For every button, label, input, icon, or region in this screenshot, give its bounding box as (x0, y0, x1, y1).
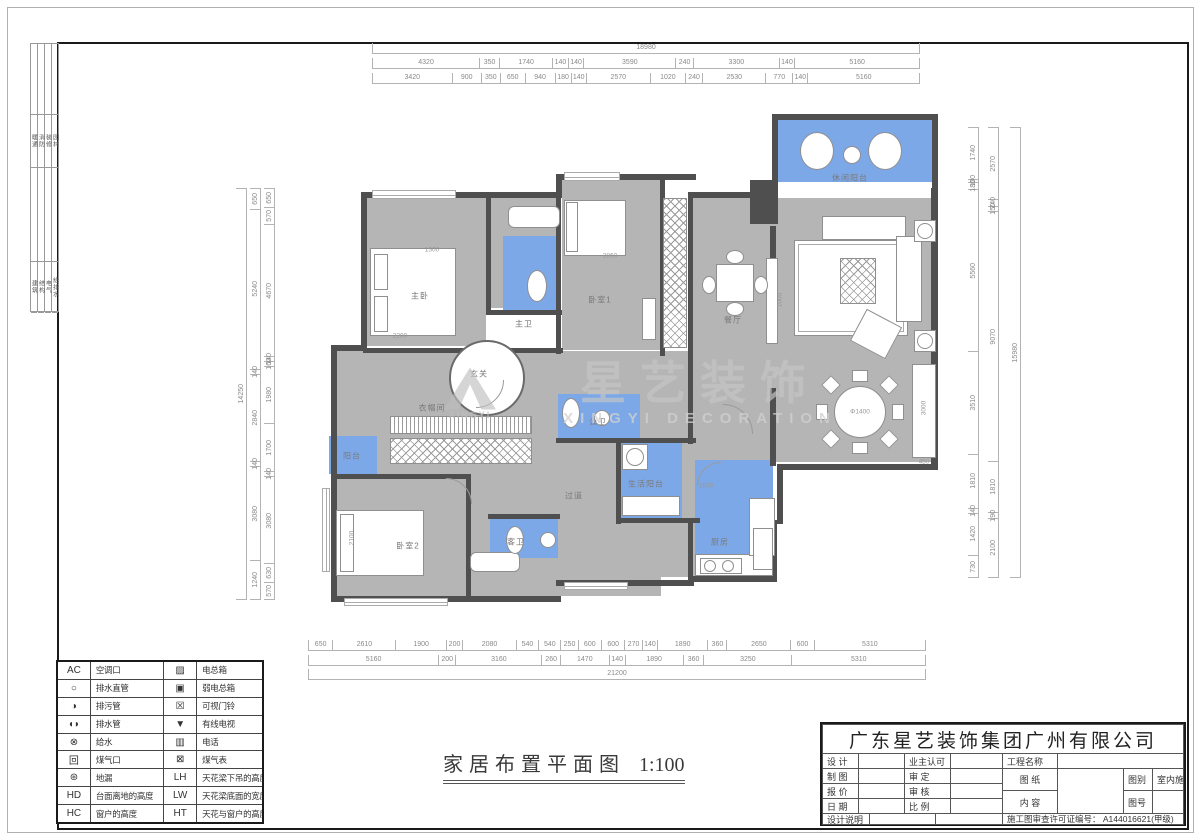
value-date (858, 798, 905, 814)
dimension-value: 1900 (413, 641, 429, 648)
dimension-segment: 2080 (463, 640, 517, 651)
dimension-value: 14250 (238, 384, 245, 403)
legend-label: 天花梁下吊的高度 (197, 769, 262, 786)
lounge-chair (800, 132, 834, 170)
field-check: 审 核 (904, 783, 951, 799)
dimension-value: 240 (688, 74, 700, 81)
value-draft (858, 768, 905, 784)
field-project-name: 工程名称 (1002, 753, 1058, 769)
dimension-segment: 1740 (500, 58, 553, 69)
toilet-public (562, 398, 580, 428)
legend-label: 台面离地的高度 (91, 787, 164, 804)
legend-table: AC空调口▨电总箱○排水直管▣弱电总箱◑排污管☒可视门铃◖◗排水管▼有线电视⊗给… (56, 660, 264, 824)
dimension-value: 540 (522, 641, 534, 648)
legend-symbol: ○ (58, 680, 91, 697)
dimension-value: 600 (607, 641, 619, 648)
plan-dimension-annotation: 1530 (699, 483, 713, 490)
dimension-segment: 5160 (808, 73, 920, 84)
room-label: 休闲阳台 (832, 173, 868, 184)
wall (777, 464, 783, 524)
legend-symbol: ⊛ (58, 769, 91, 786)
dim-chain-bottom-major: 516020031602601470140189036032505310 (308, 656, 926, 666)
dimension-value: 2650 (751, 641, 767, 648)
chair (702, 276, 716, 294)
dimension-segment: 2840 (250, 375, 261, 462)
caption-underline (443, 783, 685, 784)
dimension-value: 1240 (252, 572, 259, 588)
dimension-value: 730 (970, 561, 977, 573)
dimension-segment: 600 (579, 640, 602, 651)
dimension-segment: 1810 (968, 455, 979, 509)
dimension-segment: 600 (791, 640, 814, 651)
legend-label: 地漏 (91, 769, 164, 786)
dimension-value: 3510 (970, 395, 977, 411)
dimension-value: 1700 (266, 440, 273, 456)
dimension-value: 5240 (252, 281, 259, 297)
dimension-value: 2570 (990, 156, 997, 172)
window (564, 582, 628, 590)
dimension-value: 1420 (970, 526, 977, 542)
dimension-segment: 1980 (264, 367, 275, 423)
dimension-value: 650 (252, 193, 259, 205)
dimension-value: 140 (644, 641, 656, 648)
dimension-value: 630 (266, 567, 273, 579)
plan-dimension-annotation: 450 (919, 459, 930, 466)
dimension-segment: 600 (602, 640, 625, 651)
dimension-segment: 180 (556, 73, 572, 84)
wall (779, 464, 938, 470)
pillow (374, 296, 388, 332)
legend-symbol: ◑ (58, 698, 91, 715)
dimension-segment: 3590 (584, 58, 676, 69)
dimension-segment: 9070 (988, 212, 999, 462)
legend-row: AC空调口▨电总箱 (58, 662, 262, 680)
value-owner-approval (950, 753, 1003, 769)
dimension-segment: 140 (780, 58, 796, 69)
dimension-segment: 1900 (396, 640, 446, 651)
room-label: 衣帽间 (419, 403, 446, 414)
dimension-value: 180 (557, 74, 569, 81)
dimension-value: 3080 (266, 513, 273, 529)
dimension-segment: 900 (453, 73, 482, 84)
dimension-value: 1980 (266, 387, 273, 403)
field-drawing-type: 图别 (1123, 768, 1153, 791)
dimension-value: 1740 (970, 145, 977, 161)
dim-chain-right-major: 2570240150907018101902100 (988, 127, 999, 578)
dimension-value: 1470 (577, 656, 593, 663)
dim-chain-left-total: 14250 (236, 188, 247, 600)
dimension-segment: 350 (480, 58, 500, 69)
dimension-value: 5160 (849, 59, 865, 66)
sink-bowl (722, 560, 734, 572)
dimension-segment: 540 (517, 640, 539, 651)
legend-symbol: LH (164, 769, 197, 786)
value-sheet-content (1057, 768, 1124, 814)
plan-dimension-annotation: 1000 (777, 293, 784, 307)
field-scale: 比 例 (904, 798, 951, 814)
wall (488, 514, 560, 519)
value-drawing-type: 室内施 (1152, 768, 1184, 791)
dimension-segment: 5310 (792, 655, 926, 666)
dimension-segment: 1810 (988, 462, 999, 513)
dimension-value: 260 (545, 656, 557, 663)
plan-caption: 家居布置平面图1:100 (443, 748, 685, 784)
closet (663, 198, 687, 348)
dimension-value: 200 (449, 641, 461, 648)
dimension-segment: 140 (572, 73, 587, 84)
dimension-value: 140 (611, 656, 623, 663)
dimension-value: 5310 (862, 641, 878, 648)
dimension-segment: 18980 (372, 43, 920, 54)
room-label: 主卧 (411, 291, 429, 302)
dimension-segment: 770 (766, 73, 793, 84)
plan-dimension-annotation: 3000 (921, 401, 928, 415)
field-owner-approval: 业主认可 (904, 753, 951, 769)
dimension-value: 650 (507, 74, 519, 81)
plan-scale: 1:100 (639, 754, 685, 776)
dimension-value: 4320 (418, 59, 434, 66)
field-sheet: 图 纸 (1002, 768, 1058, 791)
dimension-value: 650 (266, 192, 273, 204)
legend-row: HC窗户的高度HT天花与窗户的高度 (58, 805, 262, 822)
legend-symbol: HT (164, 805, 197, 822)
dimension-value: 250 (564, 641, 576, 648)
wall (691, 576, 777, 582)
window (344, 598, 448, 606)
empty-cell (935, 813, 1003, 825)
dimension-segment: 5560 (968, 190, 979, 352)
strip-column: 园林 给排水 (52, 44, 58, 311)
dimension-value: 140 (794, 74, 806, 81)
dimension-segment: 140 (793, 73, 808, 84)
wall (616, 440, 621, 524)
dimension-segment: 3300 (694, 58, 780, 69)
dimension-value: 350 (484, 59, 496, 66)
plan-dimension-annotation: Φ1400 (850, 409, 870, 416)
dimension-value: 570 (266, 210, 273, 222)
room-label: 生活阳台 (628, 479, 664, 490)
dimension-segment: 4320 (372, 58, 480, 69)
bathtub-master (508, 206, 560, 228)
caption-underline (443, 780, 685, 781)
dimension-segment: 5310 (815, 640, 926, 651)
dimension-value: 3250 (740, 656, 756, 663)
wall (772, 114, 938, 120)
strip-column: 暖通 建筑 (31, 44, 38, 311)
stove (753, 528, 773, 570)
legend-label: 可视门铃 (197, 698, 262, 715)
dimension-segment: 140 (610, 655, 626, 666)
laundry-cabinet (622, 496, 680, 516)
dimension-segment: 260 (542, 655, 560, 666)
plan-title: 家居布置平面图 (443, 754, 625, 776)
field-date: 日 期 (822, 798, 859, 814)
wall (770, 388, 776, 466)
field-quote: 报 价 (822, 783, 859, 799)
dimension-segment: 2610 (333, 640, 396, 651)
wardrobe (390, 438, 532, 464)
legend-label: 排水管 (91, 716, 164, 733)
dining-chair (852, 370, 868, 382)
dimension-value: 2080 (482, 641, 498, 648)
wall (361, 192, 367, 350)
wall (556, 438, 696, 443)
dimension-segment: 540 (539, 640, 561, 651)
dimension-value: 5560 (970, 263, 977, 279)
dimension-segment: 140 (553, 58, 569, 69)
room-label: 公卫 (589, 417, 607, 428)
dimension-segment: 140 (643, 640, 658, 651)
value-design (858, 753, 905, 769)
dimension-value: 21200 (607, 670, 626, 677)
wall (688, 192, 693, 444)
bay-window (322, 488, 330, 572)
basin-guest (540, 532, 556, 548)
desk (642, 298, 656, 340)
legend-symbol: 回 (58, 751, 91, 768)
dimension-value: 360 (712, 641, 724, 648)
field-drawing-no: 图号 (1123, 790, 1153, 814)
legend-symbol: ⊗ (58, 734, 91, 751)
dimension-segment: 1890 (658, 640, 708, 651)
legend-symbol: ▥ (164, 734, 197, 751)
dim-chain-right-total: 15980 (1010, 127, 1021, 578)
dimension-value: 600 (584, 641, 596, 648)
dimension-segment: 3250 (704, 655, 792, 666)
legend-label: 弱电总箱 (197, 680, 262, 697)
dimension-value: 940 (534, 74, 546, 81)
sofa (822, 216, 906, 240)
dim-chain-bottom-minor: 6502610190020020805405402506006002701401… (308, 641, 926, 651)
dimension-value: 5310 (851, 656, 867, 663)
plan-dimension-annotation: 2200 (393, 333, 407, 340)
dim-chain-top-minor: 3420900350650940180140257010202402530770… (372, 74, 920, 84)
dimension-segment: 250 (561, 640, 578, 651)
dimension-value: 18980 (636, 44, 655, 51)
legend-row: ◑排污管☒可视门铃 (58, 698, 262, 716)
dimension-segment: 3510 (968, 352, 979, 455)
dimension-segment: 21200 (308, 669, 926, 680)
dim-chain-right-minor: 17401001805560351018101401420730 (968, 127, 979, 578)
dimension-value: 200 (441, 656, 453, 663)
dim-chain-left-minor: 6505704670140160198017001403080630570 (264, 188, 275, 600)
legend-label: 窗户的高度 (91, 805, 164, 822)
pillow (566, 202, 578, 252)
legend-symbol: HD (58, 787, 91, 804)
dimension-value: 1890 (646, 656, 662, 663)
washer-drum (626, 448, 644, 466)
dimension-segment: 3420 (372, 73, 453, 84)
legend-label: 电话 (197, 734, 262, 751)
dimension-value: 270 (628, 641, 640, 648)
dimension-segment: 650 (308, 640, 333, 651)
dimension-value: 3420 (404, 74, 420, 81)
dimension-value: 1810 (970, 473, 977, 489)
window (564, 172, 620, 181)
legend-symbol: ☒ (164, 698, 197, 715)
wall-column (750, 180, 778, 224)
dimension-value: 5160 (366, 656, 382, 663)
field-approve: 审 定 (904, 768, 951, 784)
dining-chair (852, 442, 868, 454)
legend-symbol: AC (58, 662, 91, 679)
legend-symbol: ▼ (164, 716, 197, 733)
legend-symbol: ⊠ (164, 751, 197, 768)
dimension-segment: 1700 (264, 424, 275, 473)
field-draft: 制 图 (822, 768, 859, 784)
dimension-value: 5160 (856, 74, 872, 81)
dimension-value: 2610 (357, 641, 373, 648)
legend-row: 回煤气口⊠煤气表 (58, 751, 262, 769)
wall (616, 518, 700, 523)
dimension-segment: 4670 (264, 225, 275, 357)
legend-label: 有线电视 (197, 716, 262, 733)
field-design: 设 计 (822, 753, 859, 769)
dimension-segment: 200 (439, 655, 456, 666)
cabinet-shoe (390, 416, 532, 434)
strip-label: 园林 (52, 114, 58, 168)
dimension-segment: 200 (447, 640, 463, 651)
dimension-segment: 5160 (308, 655, 439, 666)
dimension-segment: 270 (625, 640, 643, 651)
tea-table (716, 264, 754, 302)
strip-column: 装修 电气 (45, 44, 52, 311)
legend-label: 给水 (91, 734, 164, 751)
room-label: 玄关 (470, 369, 488, 380)
value-design-note (869, 813, 936, 825)
room-label: 过道 (565, 491, 583, 502)
value-approve (950, 768, 1003, 784)
dimension-value: 570 (266, 585, 273, 597)
bathtub-guest (470, 552, 520, 572)
dimension-segment: 350 (482, 73, 501, 84)
dimension-segment: 360 (708, 640, 727, 651)
dimension-segment: 5240 (250, 210, 261, 370)
legend-label: 天花梁底面的宽度 (197, 787, 262, 804)
dimension-segment: 360 (684, 655, 705, 666)
dimension-value: 650 (315, 641, 327, 648)
window (372, 190, 456, 199)
dim-chain-bottom-total: 21200 (308, 670, 926, 680)
dim-chain-top-total: 18980 (372, 44, 920, 54)
dimension-segment: 2650 (727, 640, 791, 651)
plant (917, 223, 933, 239)
dimension-segment: 630 (264, 564, 275, 583)
wall (486, 192, 491, 314)
dining-chair (816, 404, 828, 420)
dimension-segment: 650 (264, 188, 275, 208)
value-project-name (1057, 753, 1184, 769)
dimension-value: 600 (797, 641, 809, 648)
legend-label: 排污管 (91, 698, 164, 715)
dimension-segment: 140 (569, 58, 585, 69)
legend-label: 空调口 (91, 662, 164, 679)
dimension-segment: 3160 (456, 655, 542, 666)
dimension-segment: 240 (676, 58, 694, 69)
dimension-segment: 940 (526, 73, 556, 84)
legend-symbol: ▨ (164, 662, 197, 679)
dimension-segment: 3080 (264, 477, 275, 564)
dimension-value: 4670 (266, 283, 273, 299)
plant (917, 333, 933, 349)
dimension-value: 15980 (1012, 343, 1019, 362)
legend-row: ○排水直管▣弱电总箱 (58, 680, 262, 698)
legend-row: ⊛地漏LH天花梁下吊的高度 (58, 769, 262, 787)
dimension-segment: 5160 (795, 58, 920, 69)
legend-row: ◖◗排水管▼有线电视 (58, 716, 262, 734)
lounge-chair (868, 132, 902, 170)
dimension-segment: 15980 (1010, 127, 1021, 578)
room-label: 客卫 (507, 537, 525, 548)
field-content: 内 容 (1002, 790, 1058, 814)
dimension-segment: 1020 (651, 73, 686, 84)
wall (688, 520, 693, 580)
dimension-segment: 1740 (968, 127, 979, 180)
dimension-value: 140 (781, 59, 793, 66)
sofa-chaise (896, 236, 922, 322)
room-label: 卧室2 (396, 541, 419, 552)
dimension-segment: 2570 (988, 127, 999, 200)
dimension-value: 9070 (990, 329, 997, 345)
chair (754, 276, 768, 294)
dimension-value: 3300 (729, 59, 745, 66)
dimension-segment: 570 (264, 583, 275, 600)
room-label: 厨房 (711, 537, 729, 548)
legend-row: HD台面离地的高度LW天花梁底面的宽度 (58, 787, 262, 805)
plan-dimension-annotation: 1500 (425, 247, 439, 254)
dimension-value: 770 (773, 74, 785, 81)
dimension-segment: 1420 (968, 514, 979, 556)
dimension-value: 2530 (726, 74, 742, 81)
value-scale (950, 798, 1003, 814)
strip-label: 给排水 (52, 261, 58, 313)
dim-chain-left-major: 6505240140284014030801240 (250, 188, 261, 600)
dining-chair (892, 404, 904, 420)
dimension-value: 140 (570, 59, 582, 66)
room-label: 主卫 (515, 319, 533, 330)
dimension-value: 2100 (990, 540, 997, 556)
room-label: 卧室1 (588, 295, 611, 306)
wall (486, 310, 562, 315)
dimension-value: 3590 (622, 59, 638, 66)
dimension-segment: 2100 (988, 519, 999, 578)
dim-chain-top-major: 43203501740140140359024033001405160 (372, 59, 920, 69)
dimension-segment: 650 (501, 73, 526, 84)
dimension-value: 1020 (660, 74, 676, 81)
dimension-value: 2840 (252, 410, 259, 426)
plan-dimension-annotation: 2100 (349, 531, 356, 545)
legend-row: ⊗给水▥电话 (58, 734, 262, 752)
chair (726, 250, 744, 264)
dimension-segment: 3080 (250, 467, 261, 561)
dimension-segment: 1470 (561, 655, 610, 666)
dimension-value: 1890 (675, 641, 691, 648)
dimension-value: 3080 (252, 506, 259, 522)
dimension-value: 3160 (491, 656, 507, 663)
dimension-segment: 1890 (626, 655, 684, 666)
dimension-segment: 570 (264, 208, 275, 225)
dimension-value: 240 (679, 59, 691, 66)
legend-label: 排水直管 (91, 680, 164, 697)
dimension-value: 2570 (610, 74, 626, 81)
dimension-segment: 240 (686, 73, 703, 84)
legend-symbol: ◖◗ (58, 716, 91, 733)
dimension-value: 140 (555, 59, 567, 66)
legend-label: 天花与窗户的高度 (197, 805, 262, 822)
strip-column: 消防 结构 (38, 44, 45, 311)
legend-label: 电总箱 (197, 662, 262, 679)
room-label: 餐厅 (724, 315, 742, 326)
